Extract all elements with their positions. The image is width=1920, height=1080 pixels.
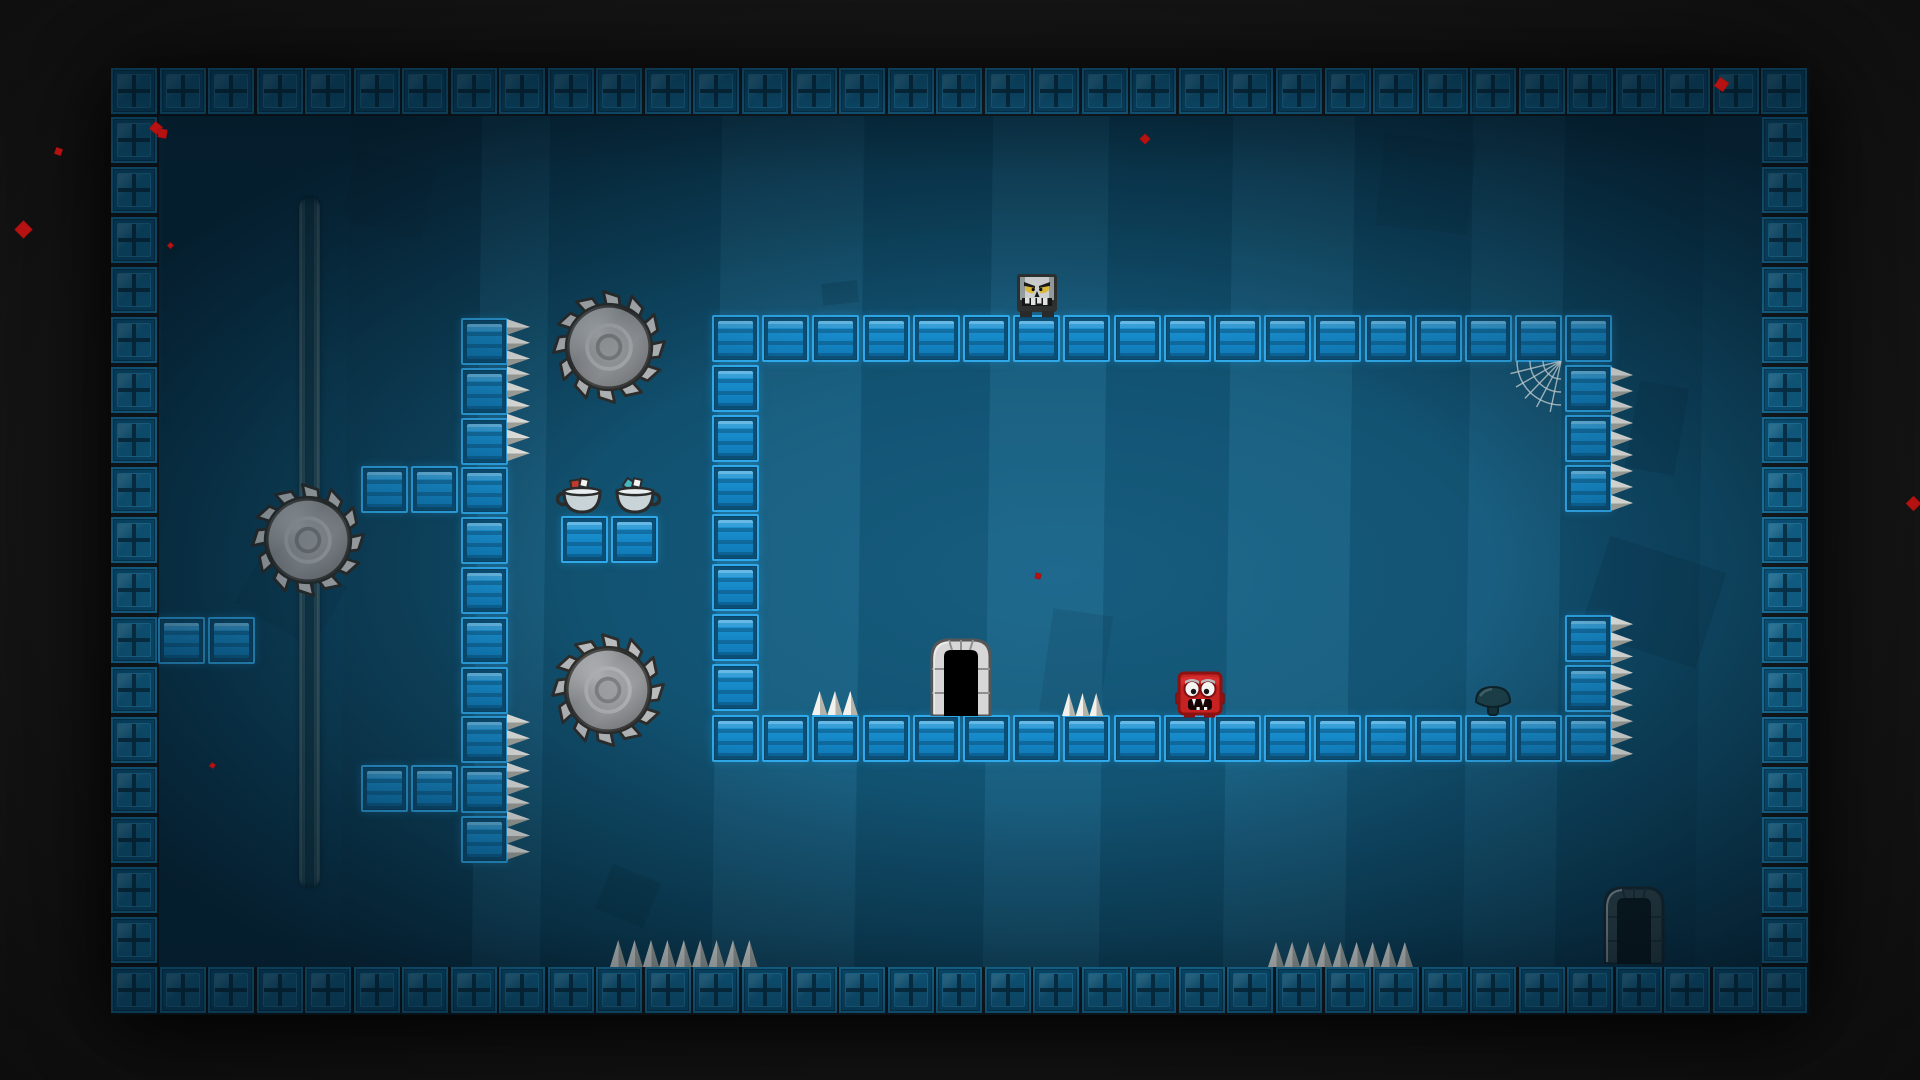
platform-tile: [461, 418, 508, 465]
border-tile: [645, 68, 691, 114]
platform-tile: [561, 516, 608, 563]
platform-tile: [963, 715, 1010, 762]
platform-tile: [1264, 315, 1311, 362]
border-tile: [985, 68, 1031, 114]
border-tile: [1713, 967, 1759, 1013]
light-shaft-bright: [1463, 116, 1566, 967]
border-tile: [1130, 967, 1176, 1013]
border-tile: [1179, 68, 1225, 114]
platform-tile: [461, 318, 508, 365]
border-tile: [1227, 68, 1273, 114]
platform-tile: [1415, 715, 1462, 762]
border-tile: [1519, 967, 1565, 1013]
border-tile: [1761, 967, 1807, 1013]
platform-tile: [208, 617, 255, 664]
border-tile: [1762, 367, 1808, 413]
platform-tile: [762, 315, 809, 362]
platform-tile: [712, 415, 759, 462]
border-tile: [1276, 68, 1322, 114]
border-tile: [596, 967, 642, 1013]
border-tile: [888, 68, 934, 114]
border-tile: [888, 967, 934, 1013]
border-tile: [985, 967, 1031, 1013]
platform-tile: [913, 715, 960, 762]
platform-tile: [1365, 315, 1412, 362]
border-tile: [1567, 68, 1613, 114]
platform-tile: [712, 315, 759, 362]
spider-web-decoration: [1505, 361, 1562, 414]
platform-tile: [1314, 315, 1361, 362]
border-tile: [1470, 68, 1516, 114]
platform-tile: [1515, 715, 1562, 762]
border-tile: [645, 967, 691, 1013]
skull-enemy-sprite: [1016, 273, 1058, 317]
border-tile: [111, 517, 157, 563]
border-tile: [111, 367, 157, 413]
platform-tile: [1214, 315, 1261, 362]
border-tile: [160, 967, 206, 1013]
platform-tile: [1114, 315, 1161, 362]
light-shaft-dark: [1099, 116, 1234, 967]
border-tile: [1762, 817, 1808, 863]
border-tile: [1664, 967, 1710, 1013]
border-tile: [1325, 967, 1371, 1013]
blood-splatter-particle: [1906, 496, 1920, 512]
platform-tile: [611, 516, 658, 563]
platform-tile: [361, 765, 408, 812]
platform-tile: [1214, 715, 1261, 762]
border-tile: [1227, 967, 1273, 1013]
debris-silhouette: [1375, 133, 1476, 234]
blood-splatter-particle: [14, 220, 32, 238]
border-tile: [1664, 68, 1710, 114]
border-tile: [499, 967, 545, 1013]
border-tile: [111, 967, 157, 1013]
border-tile: [257, 68, 303, 114]
border-tile: [1567, 967, 1613, 1013]
border-tile: [1762, 267, 1808, 313]
border-tile: [111, 717, 157, 763]
debris-silhouette: [821, 280, 859, 306]
border-tile: [1762, 467, 1808, 513]
border-tile: [548, 68, 594, 114]
border-tile: [1082, 68, 1128, 114]
platform-tile: [1164, 315, 1211, 362]
level-area: [111, 68, 1810, 1015]
border-tile: [111, 467, 157, 513]
border-tile: [839, 68, 885, 114]
border-tile: [839, 967, 885, 1013]
platform-tile: [158, 617, 205, 664]
platform-tile: [863, 315, 910, 362]
border-tile: [111, 417, 157, 463]
border-tile: [596, 68, 642, 114]
saw-blade-hazard: [551, 633, 665, 747]
platform-tile: [1565, 415, 1612, 462]
platform-tile: [1565, 665, 1612, 712]
light-shaft-dark: [1345, 116, 1474, 967]
platform-tile: [1164, 715, 1211, 762]
saw-blade-hazard: [552, 290, 666, 404]
border-tile: [111, 317, 157, 363]
platform-tile: [712, 614, 759, 661]
platform-tile: [461, 766, 508, 813]
border-tile: [791, 967, 837, 1013]
border-tile: [1276, 967, 1322, 1013]
level-interior-background: [159, 116, 1762, 967]
border-tile: [1373, 967, 1419, 1013]
platform-tile: [461, 467, 508, 514]
light-shaft-bright: [983, 116, 1110, 967]
border-tile: [791, 68, 837, 114]
platform-tile: [1013, 715, 1060, 762]
exit-door: [929, 636, 993, 716]
platform-tile: [411, 765, 458, 812]
platform-tile: [411, 466, 458, 513]
border-tile: [936, 967, 982, 1013]
platform-tile: [812, 315, 859, 362]
platform-tile: [1264, 715, 1311, 762]
platform-tile: [461, 617, 508, 664]
platform-tile: [712, 465, 759, 512]
border-tile: [1762, 767, 1808, 813]
border-tile: [1761, 68, 1807, 114]
platform-tile: [1565, 315, 1612, 362]
border-tile: [305, 68, 351, 114]
border-tile: [402, 967, 448, 1013]
border-tile: [111, 217, 157, 263]
border-tile: [1033, 967, 1079, 1013]
platform-tile: [913, 315, 960, 362]
platform-tile: [1114, 715, 1161, 762]
platform-tile: [1565, 465, 1612, 512]
border-tile: [111, 867, 157, 913]
platform-tile: [461, 368, 508, 415]
border-tile: [354, 68, 400, 114]
border-tile: [693, 967, 739, 1013]
border-tile: [1616, 967, 1662, 1013]
platform-tile: [361, 466, 408, 513]
border-tile: [1762, 417, 1808, 463]
game-viewport[interactable]: [0, 0, 1920, 1080]
platform-tile: [863, 715, 910, 762]
border-tile: [402, 68, 448, 114]
border-tile: [111, 817, 157, 863]
border-tile: [1179, 967, 1225, 1013]
saw-blade-hazard: [251, 483, 365, 597]
platform-tile: [712, 564, 759, 611]
border-tile: [1373, 68, 1419, 114]
border-tile: [1422, 967, 1468, 1013]
border-tile: [1762, 317, 1808, 363]
border-tile: [111, 617, 157, 663]
platform-tile: [762, 715, 809, 762]
border-tile: [1762, 117, 1808, 163]
border-tile: [1762, 917, 1808, 963]
border-tile: [1762, 167, 1808, 213]
border-tile: [208, 68, 254, 114]
platform-tile: [1415, 315, 1462, 362]
platform-tile: [461, 716, 508, 763]
border-tile: [111, 117, 157, 163]
border-tile: [742, 68, 788, 114]
border-tile: [693, 68, 739, 114]
platform-tile: [1515, 315, 1562, 362]
ghost-exit-door: [1602, 884, 1666, 964]
border-tile: [111, 767, 157, 813]
border-tile: [1762, 867, 1808, 913]
platform-tile: [1013, 315, 1060, 362]
platform-tile: [1565, 615, 1612, 662]
platform-tile: [712, 715, 759, 762]
platform-tile: [1465, 715, 1512, 762]
border-tile: [111, 68, 157, 114]
platform-tile: [461, 816, 508, 863]
border-tile: [1713, 68, 1759, 114]
mushroom-decoration: [1474, 684, 1512, 717]
border-tile: [111, 667, 157, 713]
border-tile: [936, 68, 982, 114]
border-tile: [111, 167, 157, 213]
border-tile: [111, 567, 157, 613]
border-tile: [1762, 567, 1808, 613]
platform-tile: [812, 715, 859, 762]
platform-tile: [712, 365, 759, 412]
border-tile: [257, 967, 303, 1013]
platform-tile: [461, 517, 508, 564]
teacup-pickup: [556, 477, 608, 519]
platform-tile: [1314, 715, 1361, 762]
platform-tile: [1565, 715, 1612, 762]
border-tile: [1130, 68, 1176, 114]
border-tile: [1082, 967, 1128, 1013]
border-tile: [1033, 68, 1079, 114]
border-tile: [548, 967, 594, 1013]
border-tile: [354, 967, 400, 1013]
border-tile: [1325, 68, 1371, 114]
border-tile: [305, 967, 351, 1013]
platform-tile: [712, 514, 759, 561]
border-tile: [499, 68, 545, 114]
border-tile: [208, 967, 254, 1013]
light-shaft-bright: [1223, 116, 1356, 967]
border-tile: [1762, 217, 1808, 263]
platform-tile: [712, 664, 759, 711]
border-tile: [451, 68, 497, 114]
platform-tile: [1365, 715, 1412, 762]
border-tile: [451, 967, 497, 1013]
border-tile: [1762, 667, 1808, 713]
blood-splatter-particle: [54, 147, 63, 156]
platform-tile: [1063, 315, 1110, 362]
border-tile: [1422, 68, 1468, 114]
border-tile: [1519, 68, 1565, 114]
border-tile: [742, 967, 788, 1013]
border-tile: [1762, 717, 1808, 763]
platform-tile: [461, 667, 508, 714]
border-tile: [111, 917, 157, 963]
platform-tile: [1565, 365, 1612, 412]
teacup-pickup: [609, 477, 661, 519]
border-tile: [1470, 967, 1516, 1013]
player-character-sprite: [1175, 671, 1225, 718]
platform-tile: [461, 567, 508, 614]
platform-tile: [963, 315, 1010, 362]
border-tile: [160, 68, 206, 114]
blood-splatter-particle: [157, 128, 167, 138]
border-tile: [111, 267, 157, 313]
light-shaft-dark: [855, 116, 994, 967]
border-tile: [1616, 68, 1662, 114]
border-tile: [1762, 617, 1808, 663]
border-tile: [1762, 517, 1808, 563]
platform-tile: [1063, 715, 1110, 762]
platform-tile: [1465, 315, 1512, 362]
